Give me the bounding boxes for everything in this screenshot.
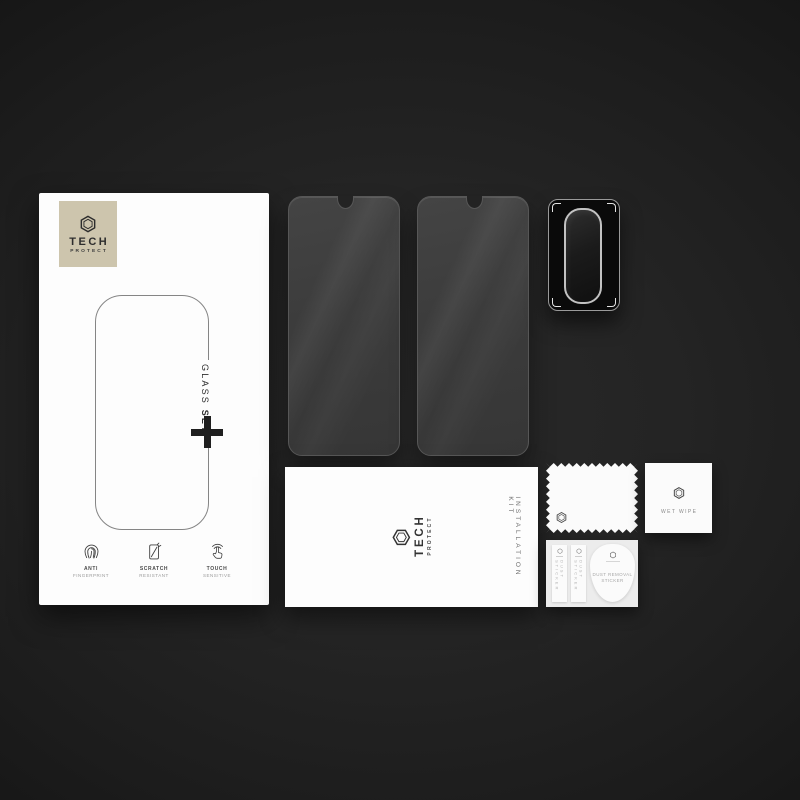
- corner-tick-icon: [552, 298, 561, 307]
- feature-label-line2: RESISTANT: [139, 573, 168, 578]
- tempered-glass-1: [288, 196, 400, 456]
- strip-label: DUST STICKER: [574, 560, 584, 602]
- hexagon-logo-icon: [556, 548, 564, 554]
- plus-icon: [191, 416, 223, 448]
- scratch-resistant-icon: [144, 541, 165, 562]
- hexagon-logo-icon: [672, 486, 686, 500]
- fingerprint-icon: [81, 541, 102, 562]
- divider: [575, 556, 582, 557]
- feature-anti-fingerprint: ANTI FINGERPRINT: [65, 541, 117, 578]
- brand-subname: PROTECT: [427, 516, 433, 555]
- wet-wipe-packet: WET WIPE: [645, 463, 712, 533]
- wet-wipe-label: WET WIPE: [661, 509, 697, 515]
- guide-sticker-strip: DUST STICKER: [552, 545, 567, 602]
- corner-tick-icon: [607, 298, 616, 307]
- sticker-sheet: DUST STICKER DUST STICKER DUST REMOVAL S…: [546, 540, 638, 607]
- installation-kit-envelope: TECH PROTECT INSTALLATION KIT: [285, 467, 538, 607]
- hexagon-logo-icon: [78, 214, 98, 234]
- corner-tick-icon: [607, 203, 616, 212]
- feature-label-line1: ANTI: [84, 566, 98, 572]
- product-photo: TECH PROTECT GLASS SET ANTI FINGERPRINT: [0, 0, 800, 800]
- lens-cutout: [564, 208, 602, 304]
- kit-logo: TECH PROTECT: [285, 467, 538, 607]
- phone-outline: [95, 295, 209, 530]
- brand-name: TECH: [69, 236, 109, 248]
- drop-sticker-label-line1: DUST REMOVAL: [593, 572, 633, 577]
- brand-logo-plate: TECH PROTECT: [59, 201, 117, 267]
- guide-sticker-strip: DUST STICKER: [571, 545, 586, 602]
- installation-kit-label: INSTALLATION KIT: [507, 496, 521, 577]
- brand-name: TECH: [414, 514, 426, 557]
- feature-scratch-resistant: SCRATCH RESISTANT: [128, 541, 180, 578]
- strip-label: DUST STICKER: [555, 560, 565, 602]
- product-name-regular: GLASS: [200, 364, 210, 410]
- tempered-glass-2: [417, 196, 529, 456]
- camera-lens-protector: [548, 199, 620, 311]
- feature-label-line2: FINGERPRINT: [73, 573, 109, 578]
- retail-box: TECH PROTECT GLASS SET ANTI FINGERPRINT: [39, 193, 269, 605]
- glass-reflection: [418, 197, 528, 455]
- brand-subname: PROTECT: [70, 249, 108, 254]
- touch-sensitive-icon: [207, 541, 228, 562]
- corner-tick-icon: [552, 203, 561, 212]
- feature-row: ANTI FINGERPRINT SCRATCH RESISTANT TOU: [65, 541, 243, 578]
- drop-sticker-label-line2: STICKER: [601, 578, 623, 583]
- feature-label-line1: TOUCH: [207, 566, 228, 572]
- wet-wipe-sachet: [546, 463, 638, 533]
- dust-removal-sticker: DUST REMOVAL STICKER: [590, 544, 635, 602]
- hexagon-logo-icon: [575, 548, 583, 554]
- feature-touch-sensitive: TOUCH SENSITIVE: [191, 541, 243, 578]
- hexagon-logo-icon: [609, 551, 617, 559]
- feature-label-line2: SENSITIVE: [203, 573, 231, 578]
- feature-label-line1: SCRATCH: [140, 566, 168, 572]
- glass-reflection: [289, 197, 399, 455]
- hexagon-logo-icon: [555, 511, 568, 524]
- divider: [556, 556, 563, 557]
- hexagon-logo-icon: [391, 527, 412, 548]
- divider: [606, 561, 620, 562]
